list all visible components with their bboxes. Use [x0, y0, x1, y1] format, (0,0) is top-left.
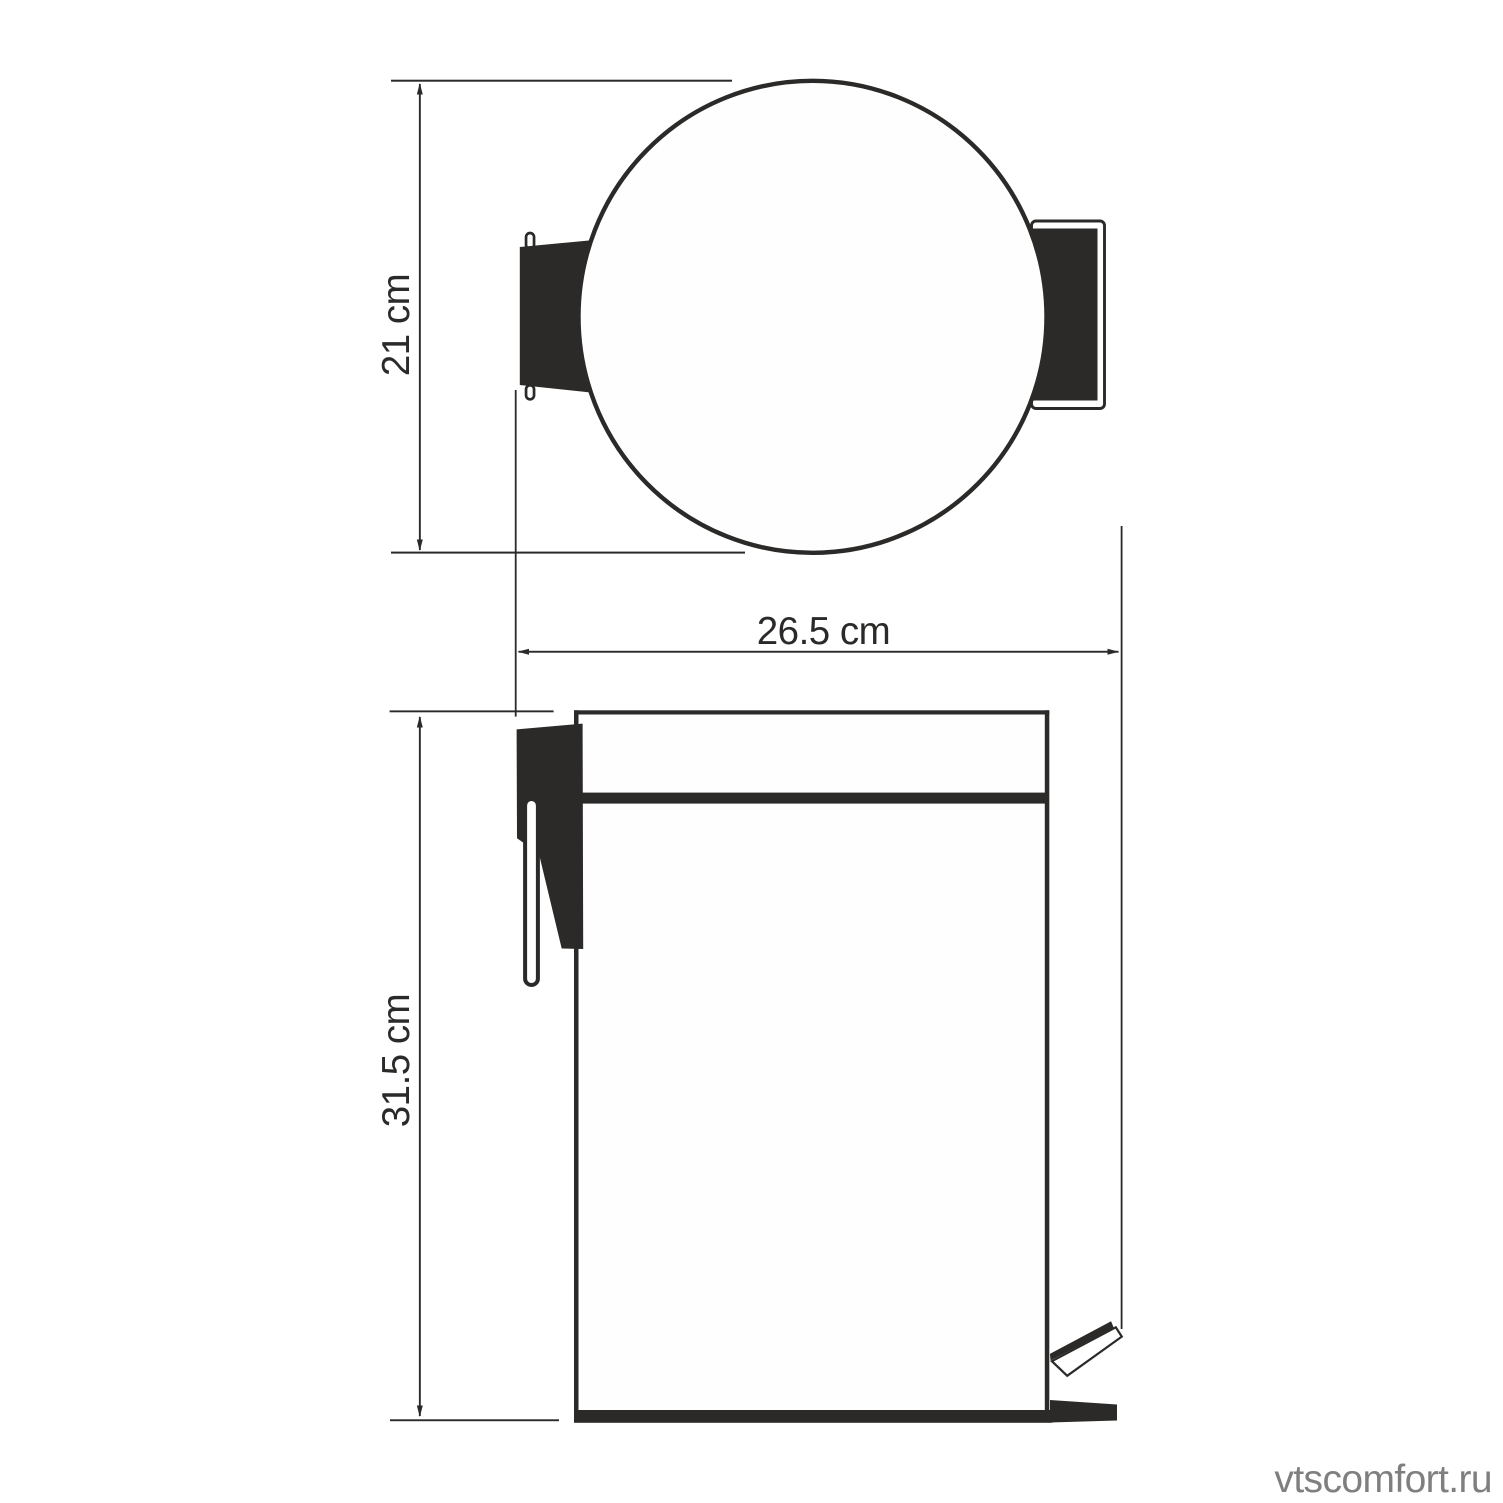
svg-text:vtscomfort.ru: vtscomfort.ru	[1274, 1458, 1492, 1501]
svg-text:26.5 cm: 26.5 cm	[757, 610, 890, 653]
svg-text:21 cm: 21 cm	[375, 274, 418, 376]
svg-text:31.5 cm: 31.5 cm	[375, 994, 418, 1127]
